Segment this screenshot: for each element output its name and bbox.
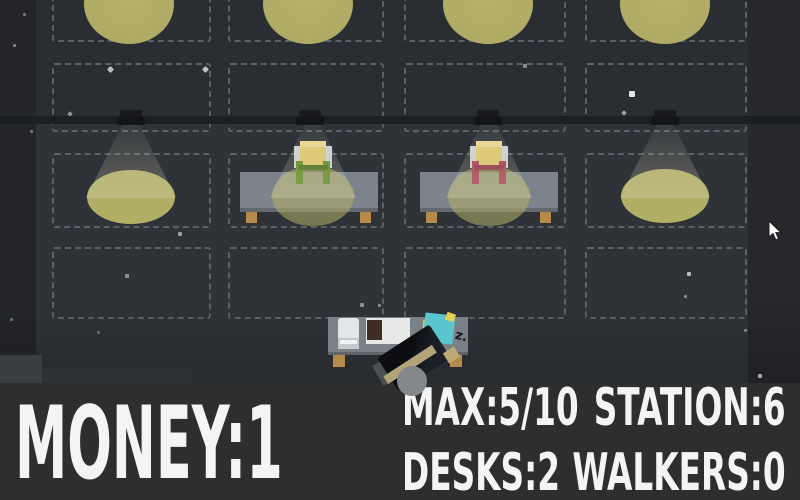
money-readout-text: MONEY:1 [15,393,283,494]
wall-lamp-base-3 [651,117,679,125]
spotlight-cone-2 [446,124,532,198]
cutting-board-icon [367,320,382,340]
wall-lamp-base-2 [474,117,502,125]
mouse-cursor-icon [768,221,784,243]
stat-walkers: WALKERS:0 [447,447,786,499]
stat-station: STATION:6 [481,382,786,434]
fridge-icon[interactable] [338,318,359,349]
game-screen: z. MONEY:1 MAX:5/10 STATION:6 DESKS:2 WA… [0,0,800,500]
doorway-platform [0,355,42,383]
wall-lamps [0,0,800,260]
wall-lamp-icon-3 [654,110,676,117]
wall-lamp-base-1 [296,117,324,125]
spotlight-cone-3 [620,124,710,198]
fridge-handle [340,340,357,344]
worker-head [397,366,427,396]
wall-lamp-base-0 [117,117,145,125]
wall-lamp-icon-2 [477,110,499,117]
wall-lamp-icon-1 [299,110,321,117]
spotlight-cone-1 [270,124,356,198]
wall-lamp-icon-0 [120,110,142,117]
spotlight-cone-0 [86,124,176,198]
doorway-mat [42,368,192,383]
hud-bar: MONEY:1 MAX:5/10 STATION:6 DESKS:2 WALKE… [0,383,800,500]
counter-leg-left [333,355,345,367]
